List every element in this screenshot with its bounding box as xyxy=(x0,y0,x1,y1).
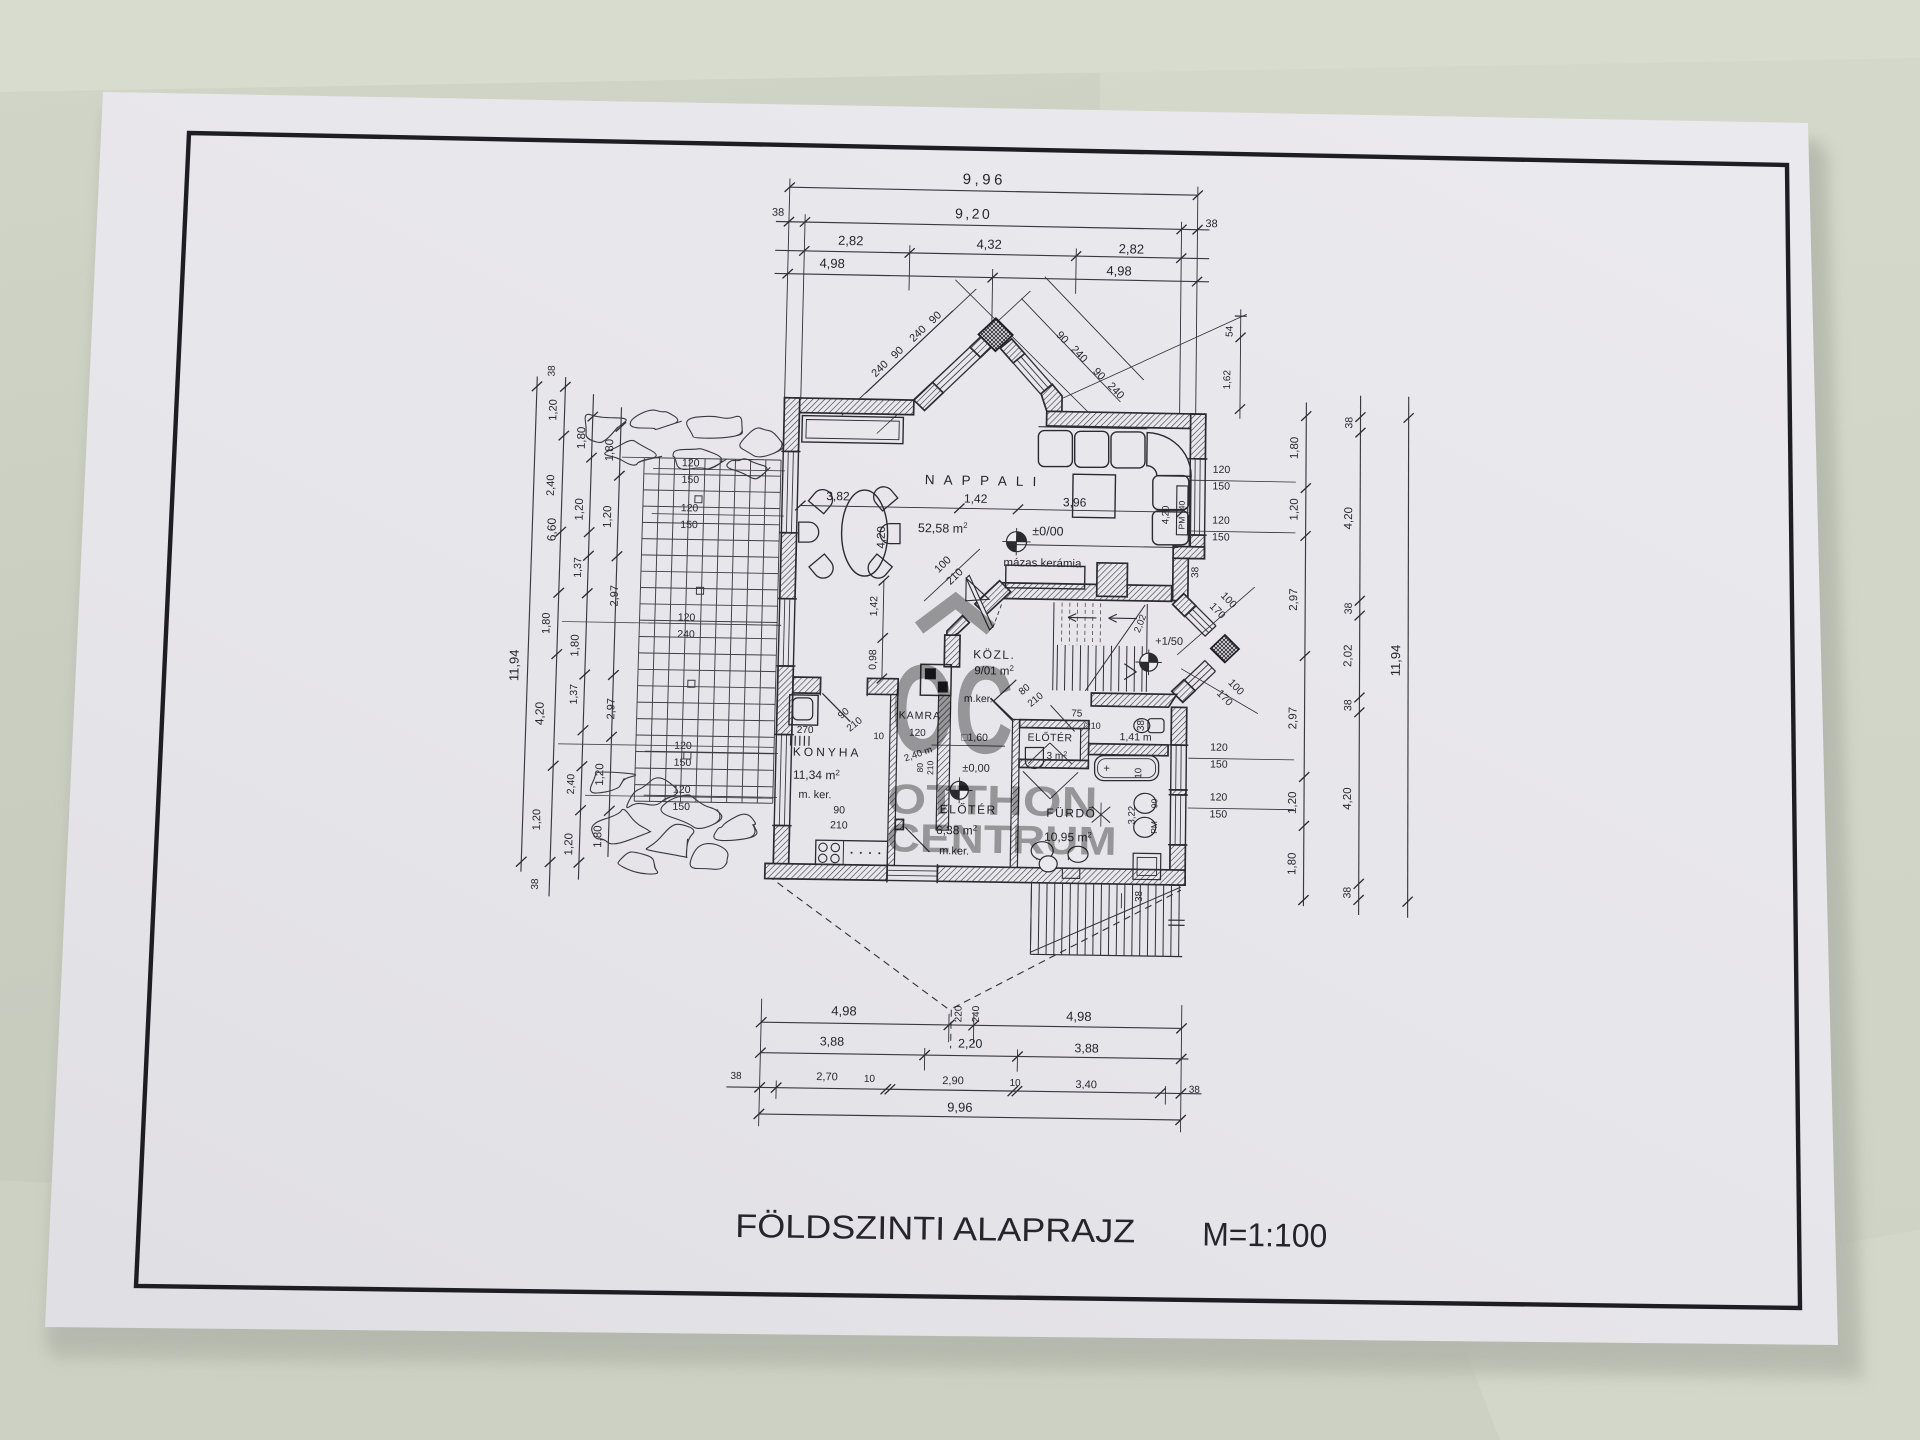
svg-text:0,98: 0,98 xyxy=(867,649,879,670)
svg-text:38: 38 xyxy=(1189,1085,1201,1096)
svg-text:2,02: 2,02 xyxy=(1342,644,1354,667)
svg-text:38: 38 xyxy=(1342,699,1354,711)
svg-text:120: 120 xyxy=(681,502,699,514)
svg-text:9,20: 9,20 xyxy=(955,205,993,222)
svg-text:220: 220 xyxy=(953,1005,964,1022)
svg-text:9,96: 9,96 xyxy=(947,1100,973,1115)
svg-text:120: 120 xyxy=(1210,742,1228,754)
svg-text:4,20: 4,20 xyxy=(532,701,546,725)
svg-text:270: 270 xyxy=(797,725,814,736)
svg-text:1,80: 1,80 xyxy=(1286,852,1298,875)
svg-text:38: 38 xyxy=(1205,218,1217,230)
svg-text:10: 10 xyxy=(1009,1078,1021,1089)
svg-text:1,41 m: 1,41 m xyxy=(1119,731,1152,744)
svg-text:11,94: 11,94 xyxy=(1388,645,1404,677)
svg-text:3,22: 3,22 xyxy=(1127,806,1138,825)
svg-text:2,97: 2,97 xyxy=(1287,707,1299,730)
svg-text:38: 38 xyxy=(547,365,558,377)
svg-text:FÖLDSZINTI ALAPRAJZ: FÖLDSZINTI ALAPRAJZ xyxy=(735,1207,1135,1249)
svg-text:1,37: 1,37 xyxy=(568,684,580,705)
svg-text:1,62: 1,62 xyxy=(1222,369,1233,389)
svg-text:120: 120 xyxy=(1212,515,1230,527)
svg-text:38: 38 xyxy=(1136,719,1147,731)
svg-text:1,20: 1,20 xyxy=(547,399,559,421)
svg-text:1,42: 1,42 xyxy=(964,491,988,505)
svg-text:38: 38 xyxy=(1343,417,1355,429)
svg-text:M=1:100: M=1:100 xyxy=(1202,1215,1327,1254)
svg-text:1,42: 1,42 xyxy=(868,596,880,617)
svg-text:240: 240 xyxy=(971,1005,982,1022)
svg-text:4,98: 4,98 xyxy=(1066,1009,1092,1024)
svg-text:2,82: 2,82 xyxy=(838,233,864,248)
svg-text:1,80: 1,80 xyxy=(569,634,581,657)
svg-text:4,32: 4,32 xyxy=(976,236,1002,251)
svg-text:3,82: 3,82 xyxy=(826,489,850,503)
svg-text:2,97: 2,97 xyxy=(609,585,621,607)
svg-text:90: 90 xyxy=(833,804,845,816)
svg-text:mázas kerámia: mázas kerámia xyxy=(1003,557,1082,570)
svg-text:11,94: 11,94 xyxy=(506,649,522,681)
svg-text:CENTRUM: CENTRUM xyxy=(886,816,1117,864)
svg-text:150: 150 xyxy=(1212,480,1230,492)
svg-text:3,88: 3,88 xyxy=(820,1034,845,1048)
svg-text:m. ker.: m. ker. xyxy=(798,789,831,802)
svg-text:4,98: 4,98 xyxy=(1106,263,1132,278)
svg-text:38: 38 xyxy=(1190,566,1201,578)
svg-text:120: 120 xyxy=(678,612,696,624)
svg-text:2,82: 2,82 xyxy=(1119,241,1145,256)
svg-text:54: 54 xyxy=(1224,325,1235,337)
svg-text:11,34 m2: 11,34 m2 xyxy=(793,768,841,783)
svg-text:150: 150 xyxy=(680,519,698,531)
svg-text:240: 240 xyxy=(677,628,695,640)
svg-text:1,80: 1,80 xyxy=(1289,437,1301,460)
svg-text:ELŐTÉR: ELŐTÉR xyxy=(1027,730,1072,745)
svg-text:38: 38 xyxy=(1341,887,1353,899)
svg-text:38: 38 xyxy=(530,878,541,890)
svg-text:2,97: 2,97 xyxy=(605,698,617,720)
svg-text:1,20: 1,20 xyxy=(531,809,543,831)
svg-text:38: 38 xyxy=(1134,890,1145,902)
svg-text:10: 10 xyxy=(873,731,884,742)
svg-text:10: 10 xyxy=(864,1074,876,1085)
svg-text:150: 150 xyxy=(1210,758,1228,770)
svg-text:+1/50: +1/50 xyxy=(1155,636,1183,648)
svg-text:PM: PM xyxy=(1149,821,1159,834)
svg-text:75: 75 xyxy=(1071,708,1083,719)
svg-text:9,96: 9,96 xyxy=(963,171,1007,189)
svg-text:1,20: 1,20 xyxy=(1289,498,1301,521)
svg-text:PM: PM xyxy=(1176,517,1186,530)
svg-text:38: 38 xyxy=(1343,602,1355,614)
svg-text:N A P P A L I: N A P P A L I xyxy=(925,472,1040,489)
svg-text:1,80: 1,80 xyxy=(592,825,604,848)
svg-text:2,90: 2,90 xyxy=(942,1075,964,1087)
svg-text:4,98: 4,98 xyxy=(819,256,845,271)
svg-text:210: 210 xyxy=(830,819,848,831)
svg-text:38: 38 xyxy=(730,1071,742,1082)
svg-text:3,88: 3,88 xyxy=(1074,1041,1099,1055)
svg-text:1,20: 1,20 xyxy=(574,498,586,521)
svg-text:90: 90 xyxy=(1149,798,1159,808)
svg-text:2,20: 2,20 xyxy=(958,1037,983,1051)
svg-text:/210: /210 xyxy=(1083,721,1101,731)
svg-text:150: 150 xyxy=(1212,531,1230,543)
svg-text:2,40: 2,40 xyxy=(565,774,577,795)
svg-text:1,37: 1,37 xyxy=(572,557,584,578)
svg-text:2,40: 2,40 xyxy=(545,474,557,496)
svg-text:150: 150 xyxy=(681,474,699,486)
svg-text:OC: OC xyxy=(890,639,1014,780)
svg-text:6,60: 6,60 xyxy=(544,517,558,541)
svg-text:3,96: 3,96 xyxy=(1063,495,1087,509)
svg-text:4,20: 4,20 xyxy=(1343,507,1355,530)
svg-text:±0/00: ±0/00 xyxy=(1032,524,1063,539)
svg-text:38: 38 xyxy=(772,207,784,219)
svg-text:1,80: 1,80 xyxy=(540,612,552,634)
svg-text:52,58 m2: 52,58 m2 xyxy=(918,520,968,536)
svg-text:120: 120 xyxy=(1213,464,1231,476)
svg-text:4,98: 4,98 xyxy=(831,1003,857,1018)
svg-text:4,20: 4,20 xyxy=(1160,506,1171,525)
svg-text:1,20: 1,20 xyxy=(602,505,614,528)
svg-text:150: 150 xyxy=(1209,808,1227,820)
svg-text:KONYHA: KONYHA xyxy=(793,745,862,760)
svg-text:3,40: 3,40 xyxy=(1075,1079,1097,1091)
svg-text:1,20: 1,20 xyxy=(1287,791,1299,814)
svg-text:4,20: 4,20 xyxy=(876,526,888,549)
svg-text:4,20: 4,20 xyxy=(1342,787,1354,810)
svg-text:2,70: 2,70 xyxy=(816,1071,838,1083)
svg-text:120: 120 xyxy=(1210,791,1228,803)
svg-text:150: 150 xyxy=(672,801,690,813)
svg-text:2,97: 2,97 xyxy=(1288,588,1300,611)
svg-text:1,20: 1,20 xyxy=(563,833,575,856)
svg-text:10: 10 xyxy=(1133,768,1144,779)
svg-text:+: + xyxy=(1103,763,1110,775)
